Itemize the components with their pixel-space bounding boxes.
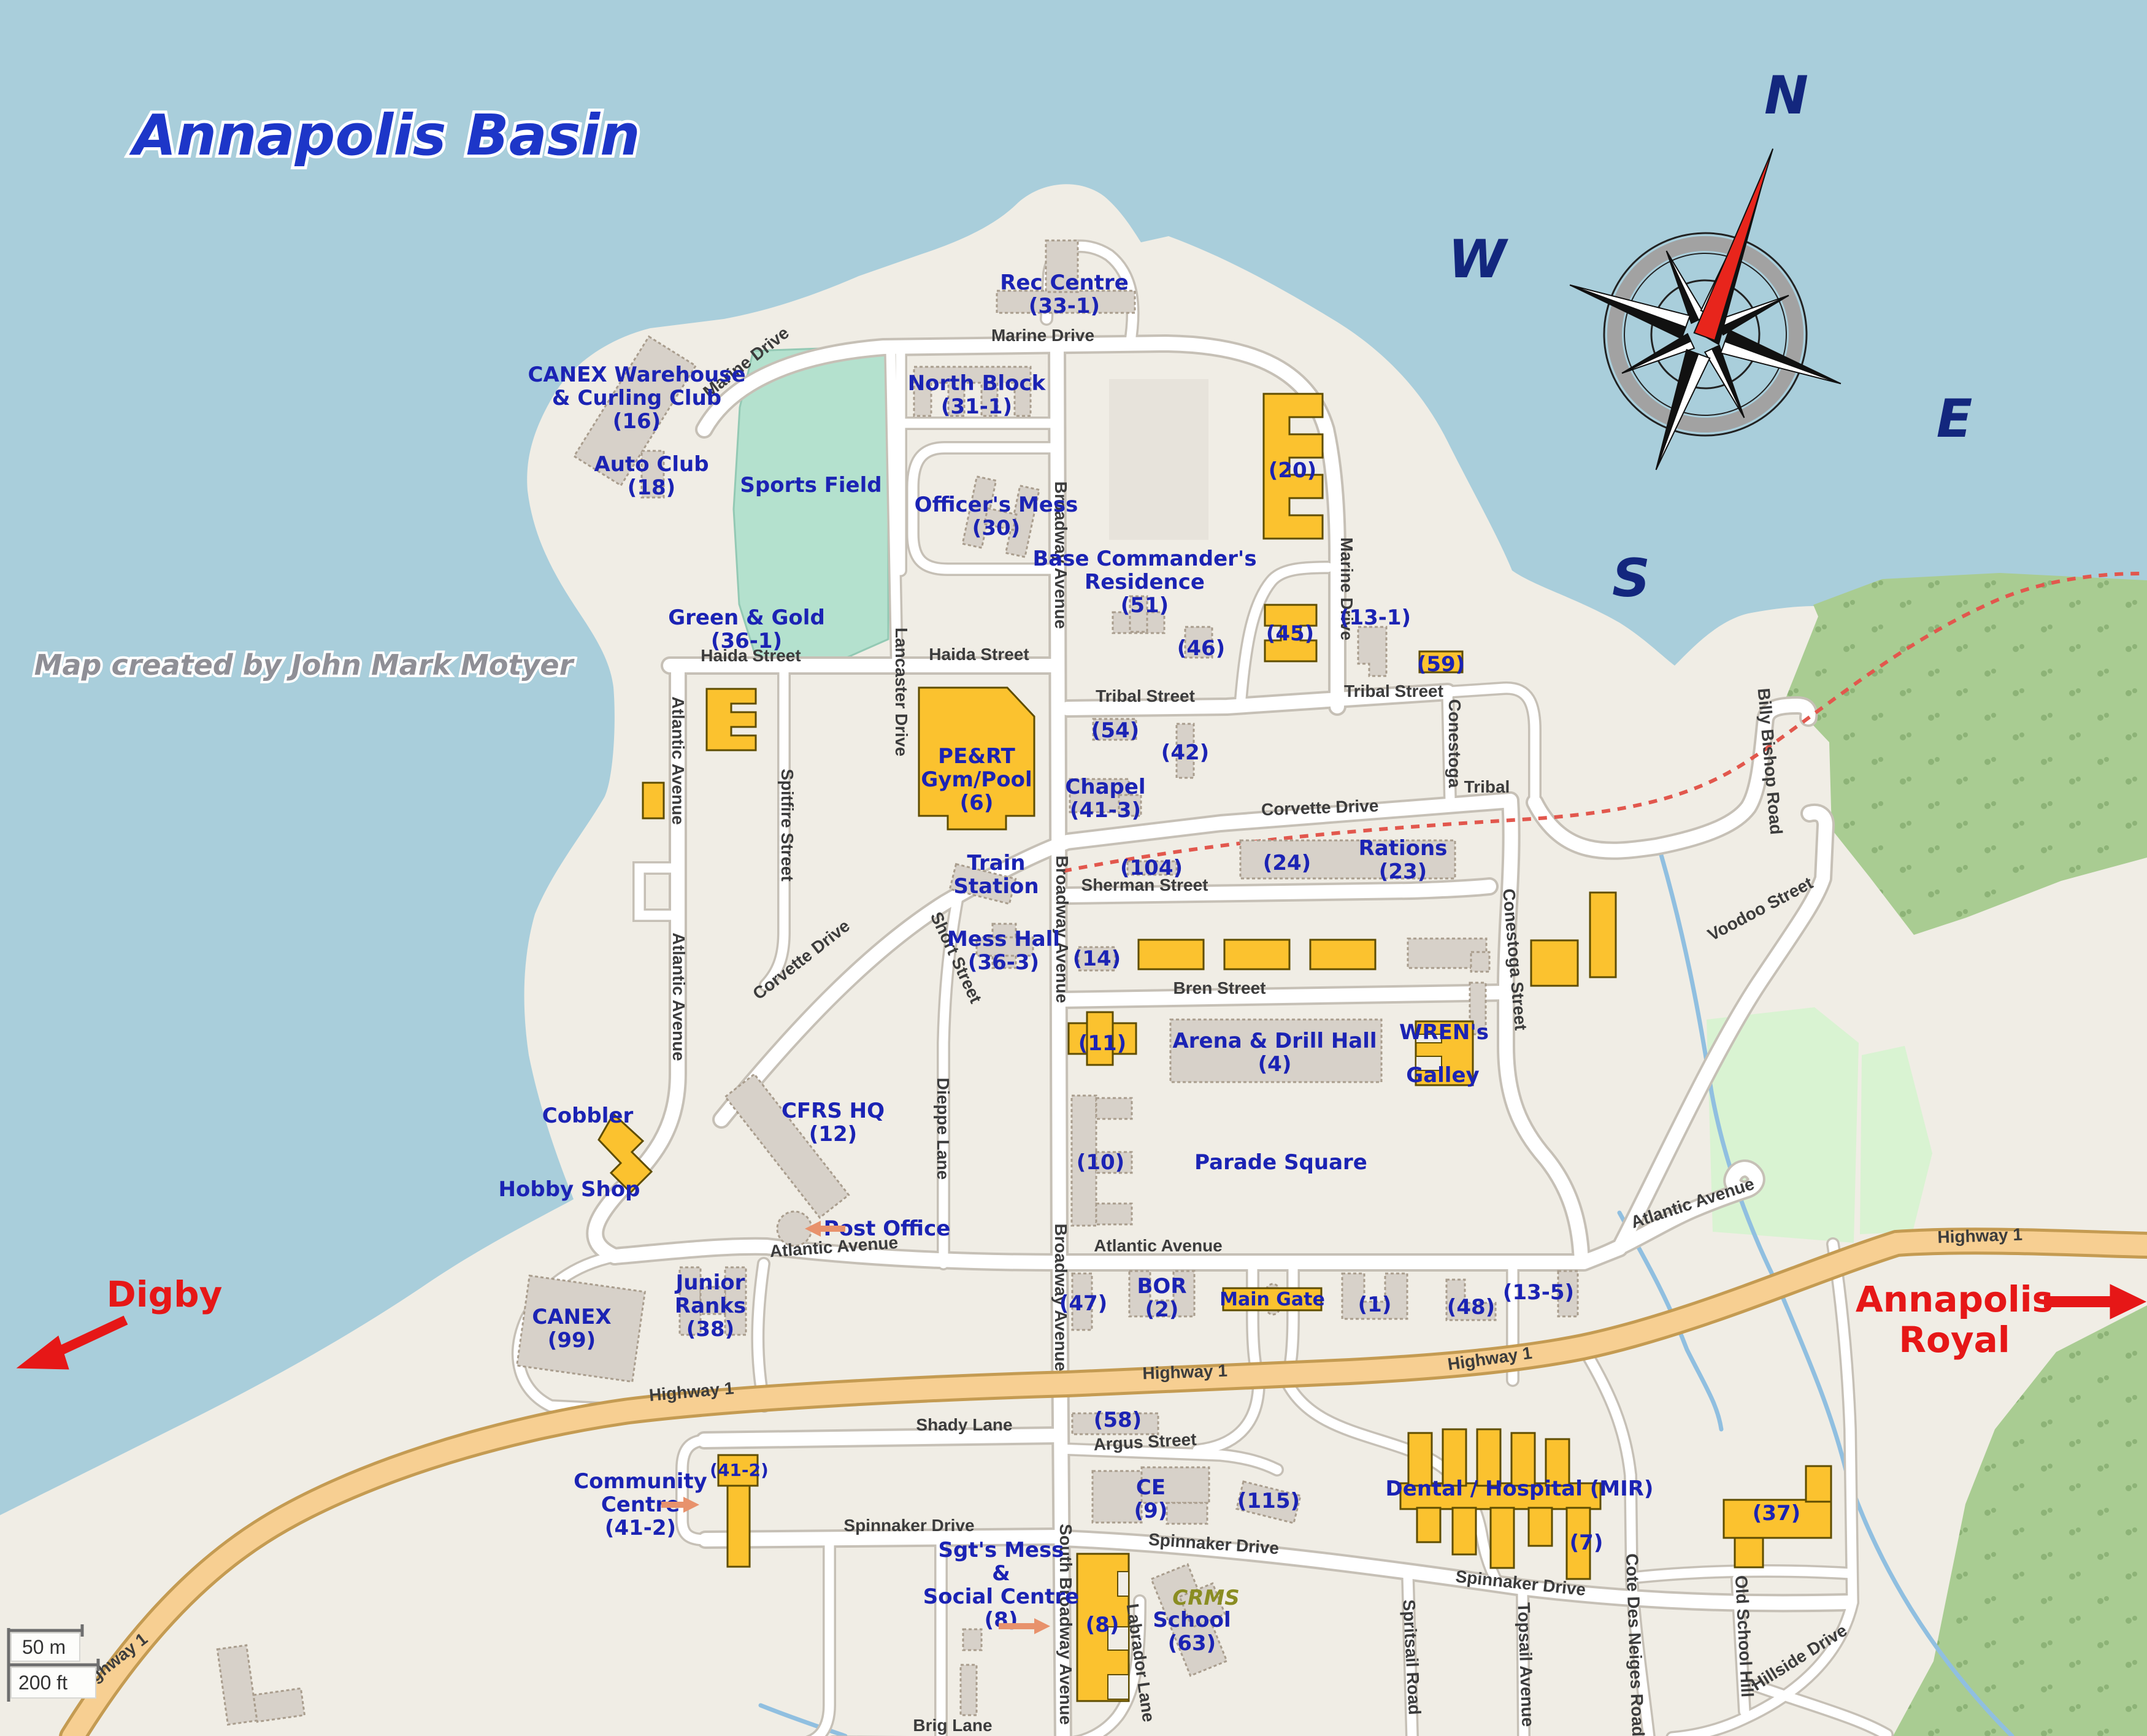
- place-label: (16): [613, 409, 661, 434]
- place-label: CFRS HQ: [782, 1099, 885, 1123]
- street-label: Tribal Street: [1344, 682, 1443, 701]
- place-label: Dental / Hospital (MIR): [1386, 1477, 1654, 1501]
- place-label: Ranks: [675, 1294, 746, 1318]
- place-label: (59): [1417, 652, 1465, 677]
- place-label: Train: [967, 851, 1025, 875]
- place-label: Rations: [1359, 836, 1448, 861]
- street-label: Lancaster Drive: [892, 628, 911, 756]
- compass-e-label: E: [1937, 388, 1973, 450]
- street-label: Bren Street: [1173, 978, 1266, 997]
- place-label: Mess Hall: [947, 927, 1060, 951]
- place-label: (41-2): [605, 1516, 676, 1540]
- street-label: Dieppe Lane: [934, 1078, 953, 1180]
- place-label: (41-2): [710, 1460, 769, 1480]
- street-label: Tribal Street: [1096, 686, 1195, 705]
- place-label: Junior: [675, 1270, 745, 1295]
- place-label: Social Centre: [923, 1584, 1079, 1609]
- place-label: Green & Gold: [668, 605, 825, 630]
- place-label: Auto Club: [594, 452, 709, 477]
- place-label: BOR: [1137, 1274, 1187, 1299]
- street-label: Brig Lane: [913, 1716, 992, 1735]
- street-label: Haida Street: [929, 645, 1029, 664]
- place-label: (54): [1091, 718, 1139, 743]
- compass-w-label: W: [1448, 229, 1509, 290]
- scale-imperial-label: 200 ft: [18, 1672, 67, 1694]
- place-label: CANEX Warehouse: [528, 363, 745, 387]
- street-label: Atlantic Avenue: [669, 696, 688, 825]
- place-label: (41-3): [1070, 798, 1141, 823]
- digby-label: Digby: [107, 1273, 223, 1315]
- place-label: (6): [960, 791, 994, 815]
- map-stage: Marine DriveMarine DriveMarine DriveBroa…: [0, 0, 2147, 1736]
- place-label: Arena & Drill Hall: [1172, 1029, 1377, 1053]
- scale-metric-label: 50 m: [22, 1636, 66, 1658]
- place-label: (18): [628, 475, 675, 500]
- street-label: Spinnaker Drive: [843, 1516, 974, 1535]
- place-label: (12): [809, 1122, 857, 1146]
- place-label: CE: [1136, 1475, 1166, 1500]
- place-label: (37): [1753, 1501, 1800, 1526]
- place-label: (104): [1120, 856, 1183, 880]
- place-label: WREN's: [1399, 1020, 1489, 1045]
- place-label: (42): [1161, 740, 1209, 765]
- place-label: Galley: [1406, 1063, 1479, 1088]
- place-label: (20): [1269, 458, 1316, 483]
- street-label: Marine Drive: [991, 326, 1094, 345]
- base-map: Marine DriveMarine DriveMarine DriveBroa…: [0, 0, 2147, 1736]
- place-label: (51): [1121, 593, 1169, 618]
- street-label: Highway 1: [1142, 1361, 1227, 1383]
- place-label: (38): [686, 1317, 734, 1342]
- place-label: (14): [1073, 947, 1121, 971]
- place-label: (63): [1168, 1631, 1216, 1656]
- place-label: Base Commander's: [1032, 547, 1256, 571]
- place-label: (45): [1266, 621, 1314, 646]
- place-label: Rec Centre: [1000, 271, 1129, 295]
- place-label: Sgt's Mess: [939, 1538, 1064, 1562]
- annapolis-royal-label: Annapolis: [1856, 1278, 2053, 1320]
- place-label: (48): [1447, 1295, 1495, 1319]
- place-label: CANEX: [532, 1305, 611, 1329]
- place-label: Gym/Pool: [921, 767, 1032, 792]
- compass-s-label: S: [1612, 548, 1650, 609]
- place-label: Sports Field: [740, 473, 881, 497]
- place-label: &: [992, 1561, 1010, 1586]
- street-label: Atlantic Avenue: [669, 932, 688, 1061]
- place-label: (8): [1086, 1613, 1120, 1637]
- place-label: PE&RT: [938, 744, 1015, 769]
- street-label: Shady Lane: [916, 1415, 1012, 1434]
- place-label: School: [1153, 1608, 1231, 1632]
- place-label: (33-1): [1029, 294, 1100, 318]
- place-label: (36-3): [968, 950, 1039, 975]
- place-label: Parade Square: [1194, 1150, 1367, 1175]
- place-label: (58): [1094, 1408, 1142, 1432]
- place-label: (13-5): [1503, 1280, 1574, 1305]
- street-label: Tribal: [1464, 777, 1510, 796]
- place-label: & Curling Club: [552, 386, 721, 410]
- place-label: (30): [972, 516, 1020, 540]
- place-label: (4): [1258, 1052, 1292, 1077]
- map-title: Annapolis Basin: [129, 102, 640, 168]
- place-label: Officer's Mess: [915, 493, 1078, 517]
- place-label: (11): [1078, 1031, 1126, 1056]
- place-label: (13-1): [1340, 605, 1411, 630]
- place-label: CRMS: [1172, 1586, 1239, 1610]
- place-label: (36-1): [711, 629, 782, 653]
- place-label: (115): [1237, 1489, 1300, 1513]
- place-label: Cobbler: [542, 1104, 634, 1128]
- place-label: (99): [548, 1328, 596, 1353]
- place-label: (7): [1570, 1531, 1604, 1555]
- place-label: Community: [574, 1469, 707, 1494]
- place-label: Main Gate: [1219, 1289, 1325, 1310]
- place-label: Chapel: [1065, 775, 1145, 799]
- street-label: Conestoga: [1445, 699, 1464, 788]
- street-label: Spitfire Street: [778, 769, 797, 881]
- place-label: Hobby Shop: [499, 1177, 640, 1202]
- place-label: (24): [1263, 851, 1311, 875]
- compass-n-label: N: [1764, 65, 1808, 126]
- place-label: (2): [1145, 1297, 1179, 1322]
- place-label: (31-1): [941, 394, 1012, 419]
- street-label: Atlantic Avenue: [1094, 1236, 1223, 1255]
- place-label: Station: [953, 874, 1039, 899]
- place-label: (1): [1358, 1292, 1392, 1317]
- place-label: (23): [1379, 859, 1427, 884]
- place-label: (9): [1134, 1499, 1168, 1523]
- map-credit: Map created by John Mark Motyer: [34, 648, 575, 682]
- place-label: (46): [1177, 636, 1225, 661]
- street-label: Highway 1: [1937, 1225, 2022, 1247]
- place-label: North Block: [908, 371, 1047, 396]
- place-label: (47): [1059, 1291, 1107, 1316]
- annapolis-royal-label: Royal: [1899, 1319, 2010, 1361]
- place-label: Residence: [1085, 570, 1205, 594]
- place-label: (10): [1077, 1150, 1124, 1175]
